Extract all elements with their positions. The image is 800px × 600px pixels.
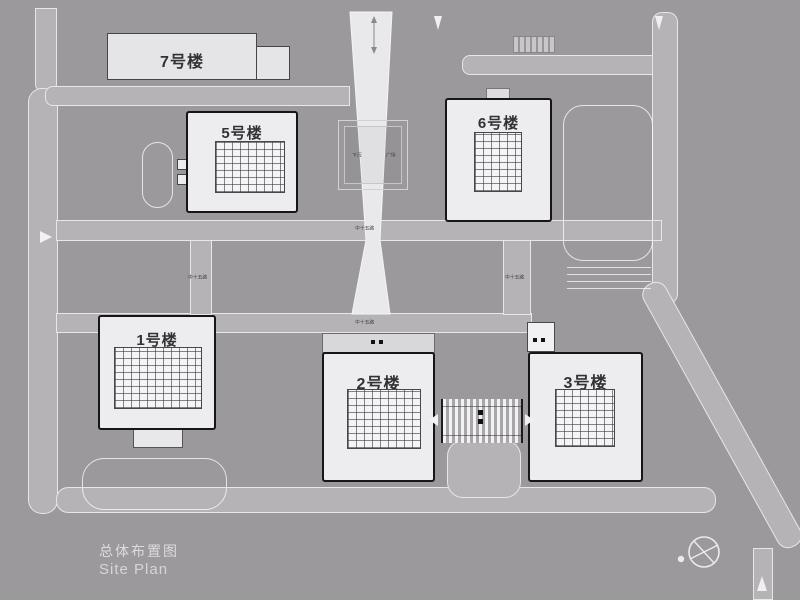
parking-stripe bbox=[567, 281, 651, 282]
drawing-title-cn: 总体布置图 bbox=[99, 541, 179, 561]
marker-dot bbox=[478, 410, 483, 415]
marker-dot bbox=[478, 419, 483, 424]
curb-block-east-of-b6 bbox=[563, 105, 653, 261]
axis-arrow-down-icon bbox=[371, 47, 377, 54]
traffic-arrow-up-icon bbox=[757, 576, 767, 591]
parking-stripe bbox=[567, 267, 651, 268]
road-name-label: 中十五路 bbox=[355, 224, 374, 231]
marker-dot bbox=[379, 340, 383, 344]
road-bottom-right-stub bbox=[753, 548, 773, 600]
parking-stripe bbox=[567, 288, 651, 289]
road-top-left-horizontal bbox=[45, 86, 350, 106]
building-5-floor-plan bbox=[215, 141, 285, 193]
building-6-label: 6号楼 bbox=[447, 112, 550, 133]
building-3-annex bbox=[527, 322, 555, 352]
building-7-extension bbox=[256, 46, 290, 80]
parking-stripe bbox=[567, 274, 651, 275]
road-name-label: 中十五路 bbox=[505, 273, 524, 280]
building-7: 7号楼 bbox=[107, 33, 257, 80]
connector-edge-line bbox=[443, 435, 521, 436]
road-name-label: 中十五路 bbox=[188, 273, 207, 280]
marker-dot bbox=[533, 338, 537, 342]
plaza-label-right: 广场 bbox=[386, 151, 396, 158]
building-2-floor-plan bbox=[347, 389, 421, 449]
curb-oval-west-of-b5 bbox=[142, 142, 173, 208]
axis-arrow-up-icon bbox=[371, 16, 377, 23]
walkway-arrow-left-icon bbox=[429, 414, 438, 426]
building-3-floor-plan bbox=[555, 389, 615, 447]
building-1-porch bbox=[133, 428, 183, 448]
traffic-arrow-down-icon bbox=[655, 16, 663, 30]
building-5-label: 5号楼 bbox=[188, 122, 296, 143]
road-top-left-stub bbox=[35, 8, 57, 92]
road-left-vertical bbox=[28, 88, 58, 514]
drawing-title-en: Site Plan bbox=[99, 561, 168, 578]
curb-loop-below-b1 bbox=[82, 458, 227, 510]
road-loop-below-connector bbox=[447, 440, 521, 498]
parking-ramp-structure bbox=[513, 36, 555, 53]
traffic-arrow-right-icon bbox=[40, 231, 52, 243]
road-name-label: 中十五路 bbox=[355, 318, 374, 325]
building-6-floor-plan bbox=[474, 132, 522, 192]
walkway-arrow-right-icon bbox=[525, 414, 534, 426]
road-top-right-horizontal bbox=[462, 55, 664, 75]
building-7-label: 7号楼 bbox=[108, 48, 256, 72]
marker-dot bbox=[541, 338, 545, 342]
traffic-arrow-down-icon bbox=[434, 16, 442, 30]
site-plan-canvas: 下沉 广场 7号楼 5号楼 6号楼 1号楼 2号楼 3号楼 bbox=[0, 0, 800, 600]
building-1-floor-plan bbox=[114, 347, 202, 409]
road-right-vertical bbox=[652, 12, 678, 304]
connector-edge-line bbox=[443, 406, 521, 407]
marker-dot bbox=[371, 340, 375, 344]
plaza-label-left: 下沉 bbox=[352, 151, 362, 158]
